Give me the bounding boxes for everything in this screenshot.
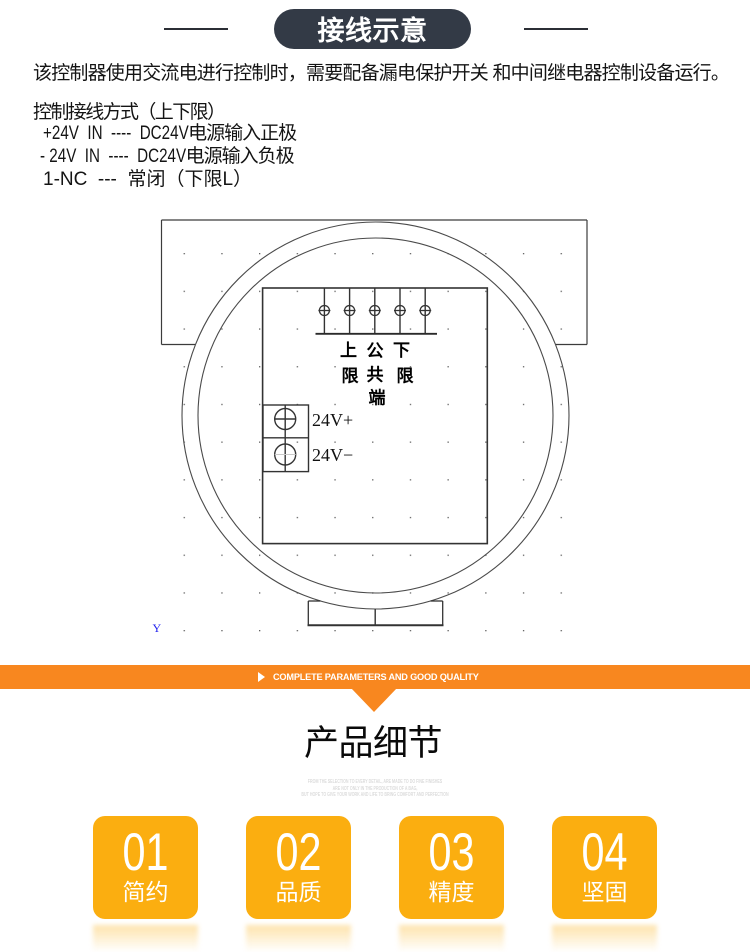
svg-text:限: 限: [397, 367, 414, 386]
svg-text:Y: Y: [153, 621, 162, 635]
svg-text:限: 限: [342, 367, 359, 386]
svg-text:24V−: 24V−: [312, 445, 353, 465]
svg-text:端: 端: [369, 388, 386, 408]
svg-text:24V+: 24V+: [312, 410, 353, 430]
svg-text:下: 下: [393, 341, 410, 360]
svg-text:共: 共: [367, 366, 384, 385]
svg-text:公: 公: [367, 342, 384, 361]
svg-text:上: 上: [340, 341, 357, 360]
